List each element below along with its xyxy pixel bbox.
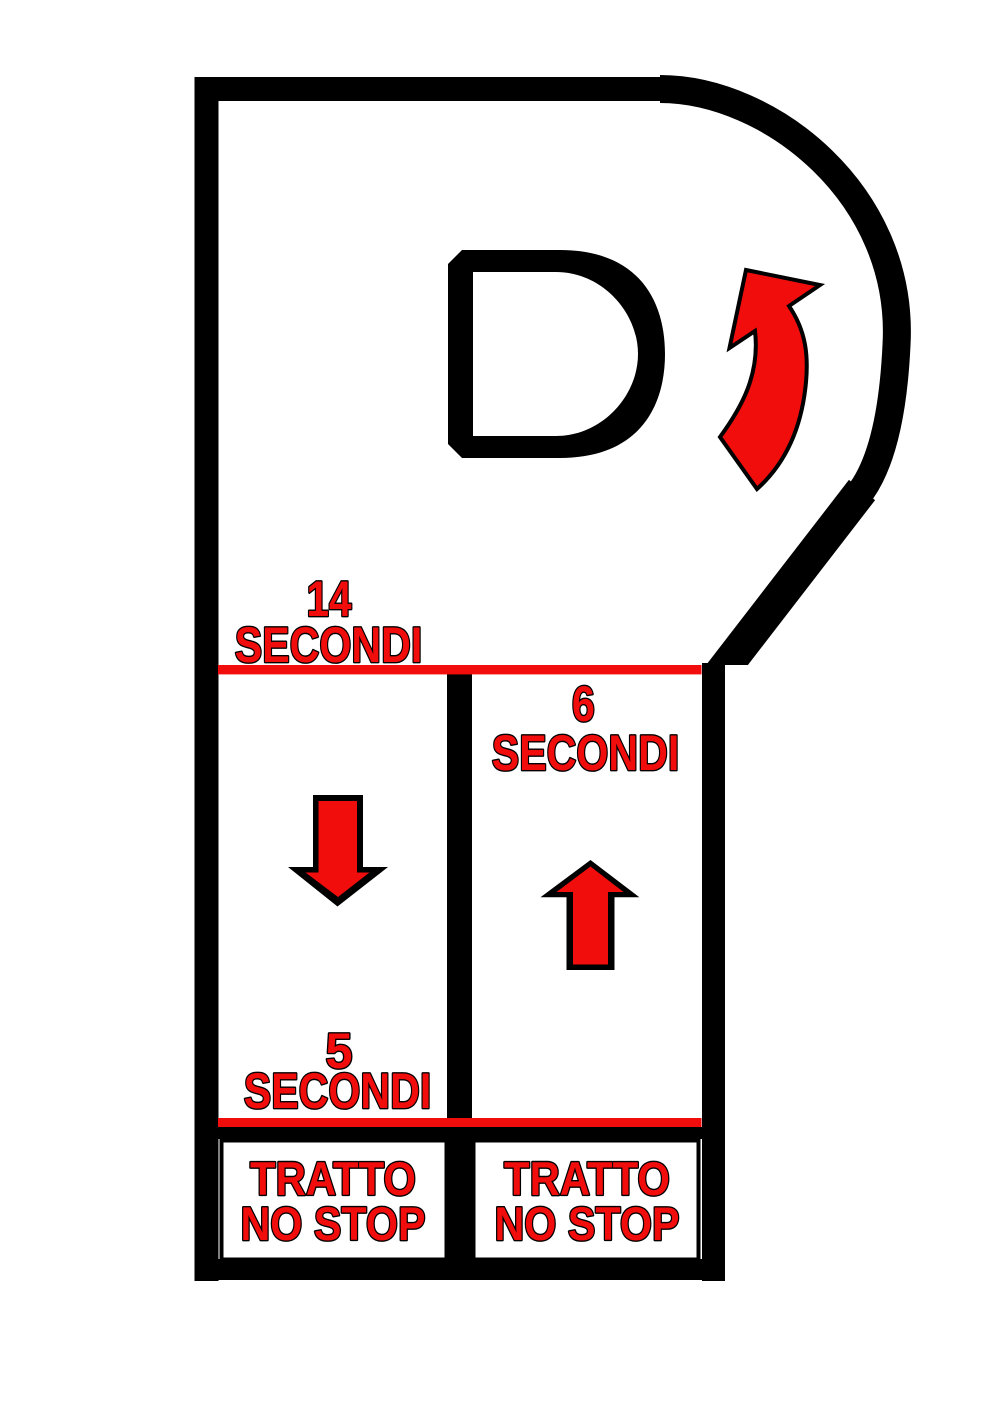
svg-text:NO STOP: NO STOP <box>241 1197 426 1250</box>
svg-text:NO STOP: NO STOP <box>495 1197 680 1250</box>
svg-text:6: 6 <box>572 676 595 732</box>
svg-text:SECONDI: SECONDI <box>244 1063 432 1119</box>
svg-text:SECONDI: SECONDI <box>235 617 423 673</box>
svg-text:SECONDI: SECONDI <box>492 725 680 781</box>
